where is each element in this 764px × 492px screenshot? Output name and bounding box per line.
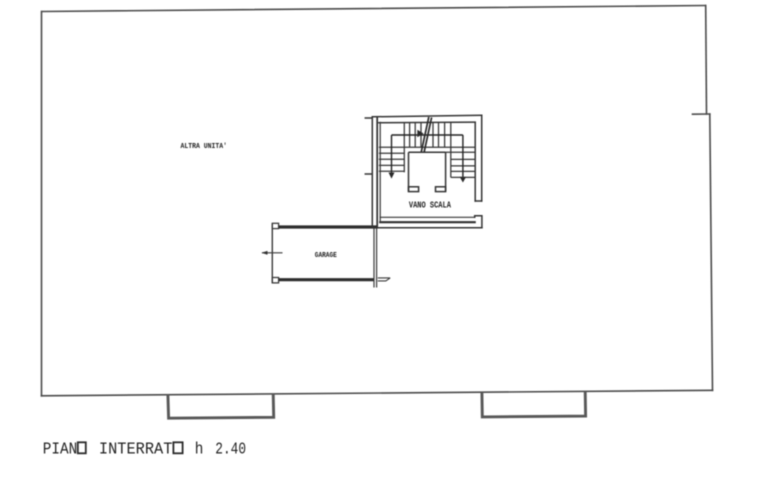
svg-text:INTERRAT: INTERRAT [99, 440, 172, 459]
svg-text:h: h [195, 440, 204, 459]
svg-text:VANO SCALA: VANO SCALA [409, 200, 452, 210]
svg-text:2.40: 2.40 [215, 440, 246, 459]
svg-text:GARAGE: GARAGE [315, 252, 338, 260]
svg-text:ALTRA UNITA': ALTRA UNITA' [181, 143, 228, 151]
svg-text:PIAN: PIAN [43, 440, 78, 459]
